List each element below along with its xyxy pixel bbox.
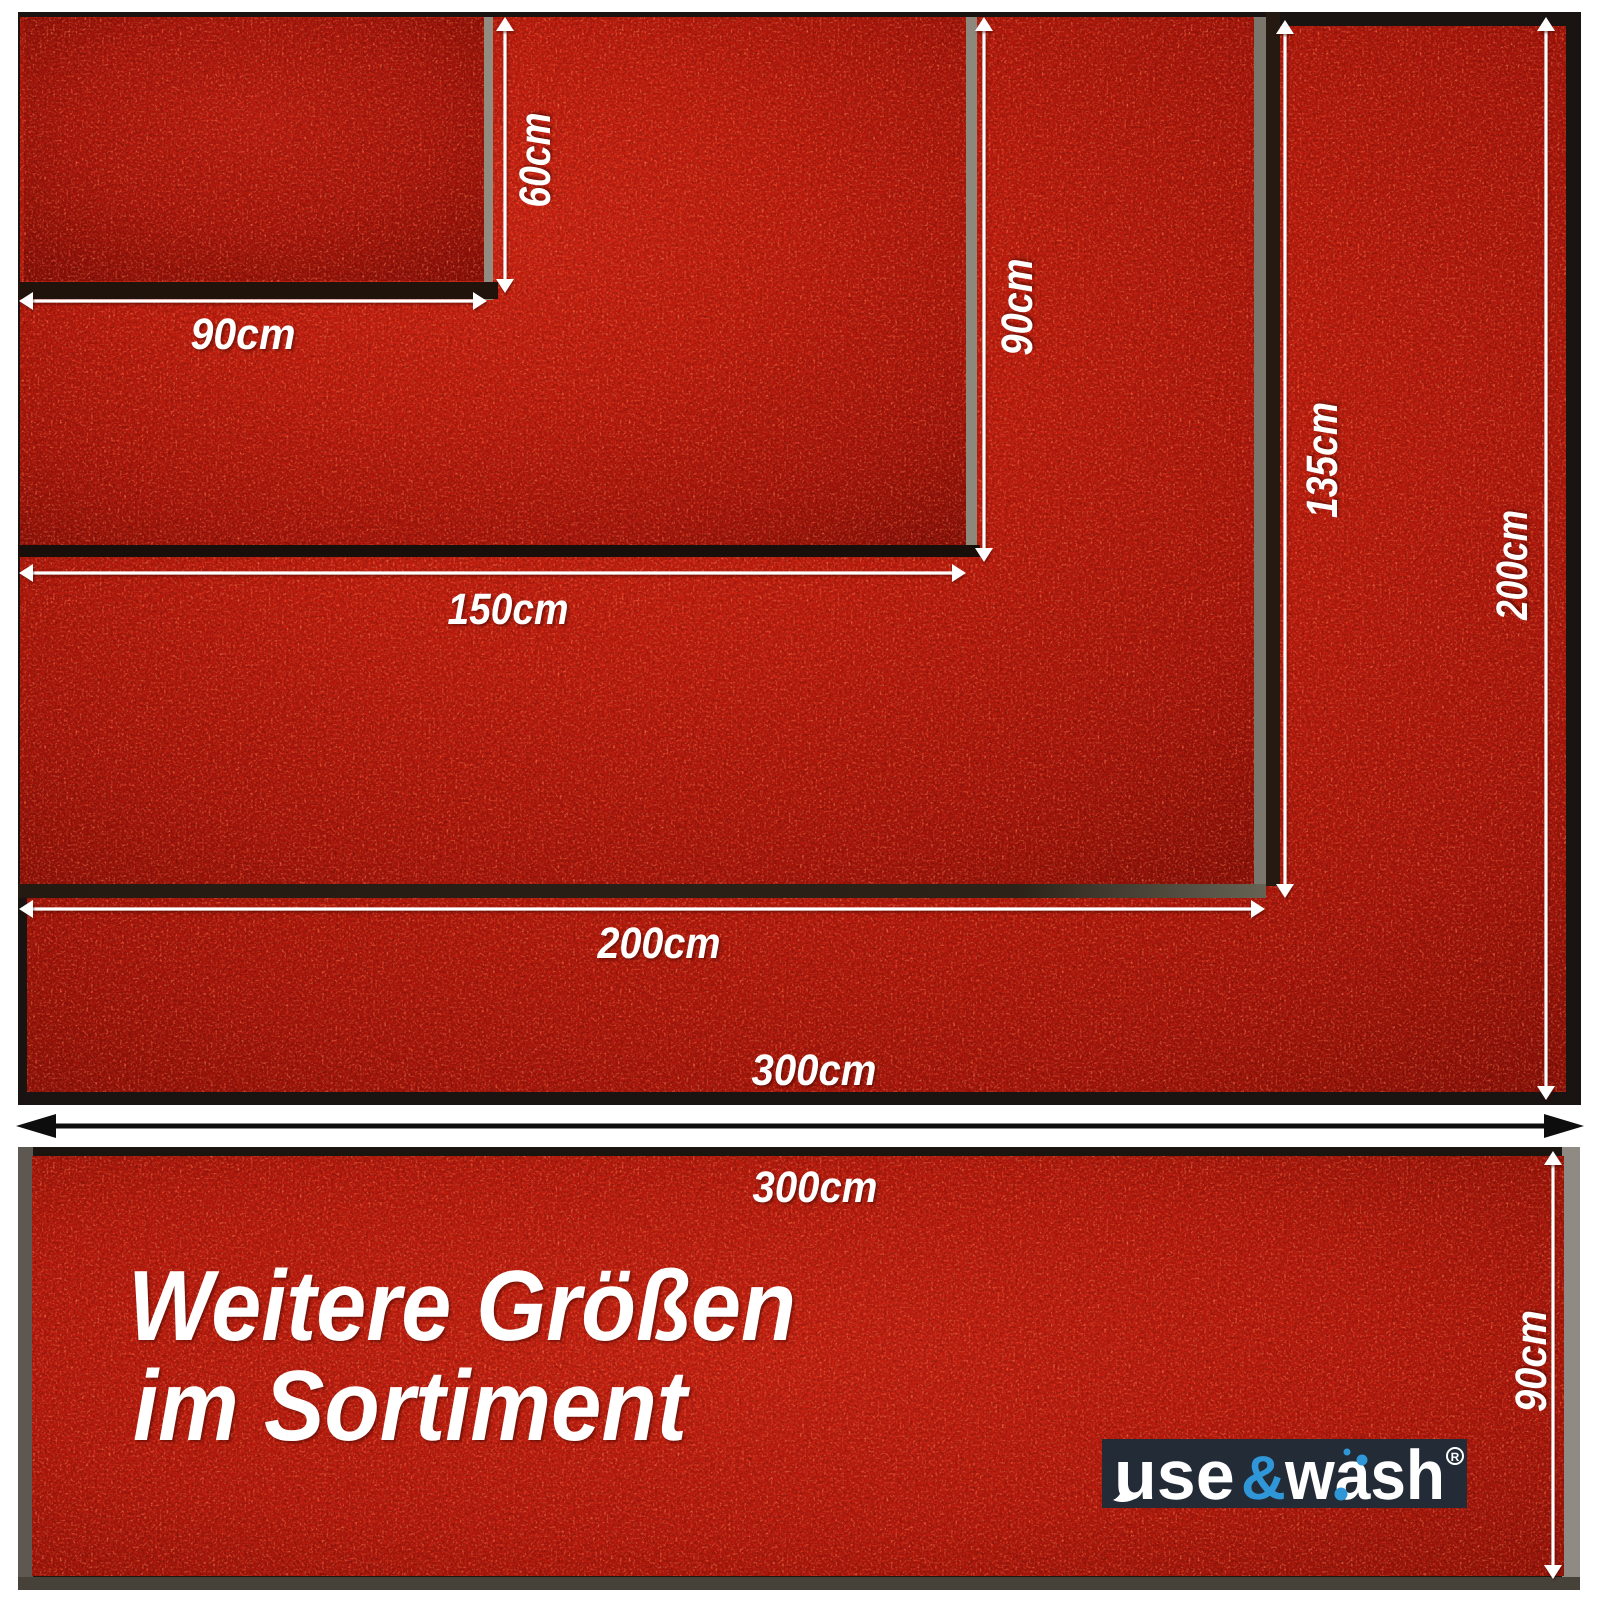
svg-text:300cm: 300cm [753,1163,878,1212]
svg-text:im Sortiment: im Sortiment [133,1350,690,1462]
svg-text:90cm: 90cm [1507,1310,1556,1412]
svg-text:&: & [1241,1444,1286,1513]
svg-text:wash: wash [1284,1436,1445,1514]
svg-text:90cm: 90cm [993,259,1042,356]
svg-text:use: use [1114,1436,1235,1514]
svg-text:200cm: 200cm [597,919,721,968]
svg-text:300cm: 300cm [752,1046,877,1095]
svg-text:R: R [1451,1450,1460,1464]
svg-text:135cm: 135cm [1298,402,1347,518]
svg-text:60cm: 60cm [511,113,560,208]
svg-text:90cm: 90cm [191,310,296,359]
svg-text:Weitere Größen: Weitere Größen [128,1250,796,1362]
svg-text:200cm: 200cm [1488,510,1537,621]
svg-text:150cm: 150cm [448,585,569,634]
